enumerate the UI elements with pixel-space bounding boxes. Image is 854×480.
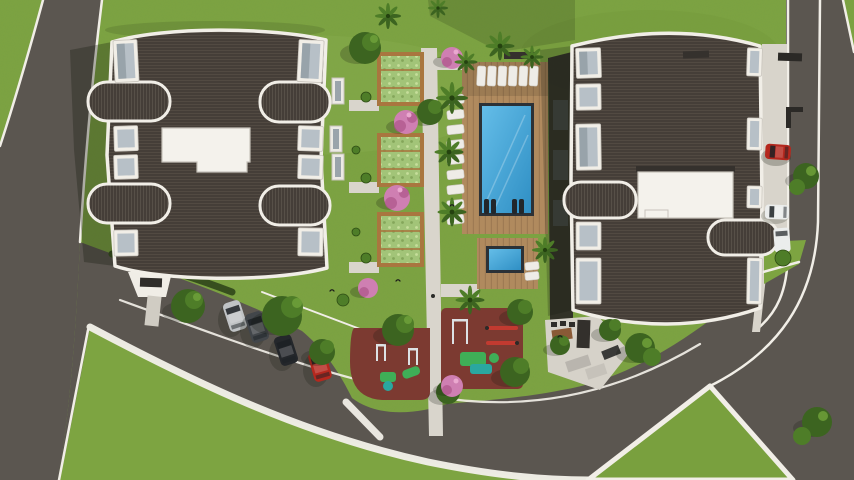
swing-frame-post	[384, 345, 386, 361]
skylight	[747, 118, 763, 150]
skylight	[576, 222, 601, 250]
palm-tree	[486, 32, 515, 61]
slide-unit	[380, 372, 396, 382]
sun-lounger	[447, 124, 465, 135]
palm-tree	[435, 138, 464, 167]
entrance-canopy	[778, 53, 802, 62]
apartment-building-east	[564, 33, 778, 324]
sun-lounger	[529, 66, 539, 86]
roof-bay-east	[708, 220, 778, 255]
roof-vent	[683, 51, 709, 59]
apartment-building-west	[88, 30, 344, 278]
shrub-ball	[352, 146, 360, 154]
skylight	[575, 48, 601, 79]
shrub-ball	[361, 92, 371, 102]
driveway-car-white	[765, 204, 789, 219]
garden-path-2	[349, 182, 379, 193]
skylight	[576, 124, 602, 170]
skylight	[747, 258, 763, 304]
sun-lounger	[508, 66, 518, 86]
palm-tree	[375, 3, 401, 29]
skylight	[114, 126, 139, 152]
shrub-ball	[361, 253, 371, 263]
driveway-car-red	[765, 143, 792, 160]
sun-lounger	[487, 66, 497, 86]
pool-ladder	[491, 199, 496, 214]
palm-tree	[454, 50, 477, 73]
palm-tree	[456, 286, 485, 315]
roof-bay-east-2	[260, 186, 330, 225]
gym-bench-red	[486, 341, 518, 345]
outdoor-chair	[551, 322, 557, 327]
terrace-frame-dark	[636, 166, 735, 172]
skylight	[297, 39, 324, 82]
shrub-ball	[352, 228, 360, 236]
swing-frame-post	[408, 349, 410, 365]
skylight	[298, 155, 324, 180]
aerial-render: Aerial top-down 3D architectural renderi…	[0, 0, 854, 480]
gym-bench-end	[515, 341, 519, 345]
gym-frame-post	[452, 320, 454, 344]
palm-tree	[438, 198, 467, 227]
skylight	[298, 126, 324, 152]
sun-lounger	[497, 66, 507, 86]
play-structure	[460, 352, 486, 366]
west-entrance-door	[140, 278, 162, 288]
kids-pool-water	[489, 249, 521, 270]
pool-ladder	[484, 199, 489, 214]
pool-ladder	[519, 199, 524, 214]
garden-bed-3	[379, 214, 422, 265]
roof-terrace-white	[638, 172, 733, 218]
skylight	[747, 186, 762, 208]
skylight	[114, 230, 138, 256]
west-building-balconies	[330, 78, 344, 180]
gym-bench-end	[485, 326, 489, 330]
skylight	[298, 228, 323, 256]
outdoor-chair	[560, 321, 566, 326]
garden-path-3	[349, 262, 379, 273]
sun-lounger	[525, 271, 540, 280]
skylight	[576, 258, 601, 304]
pool-ladder	[512, 199, 517, 214]
shrub	[337, 294, 349, 306]
site-plan-render: Aerial top-down 3D architectural renderi…	[0, 0, 854, 480]
palm-tree	[436, 82, 468, 114]
skylight	[114, 155, 139, 180]
roof-bay-west-1	[88, 82, 170, 121]
lamp-post	[431, 294, 435, 298]
balcony-glass	[335, 157, 341, 177]
sun-lounger	[447, 169, 465, 180]
swing-frame-post	[376, 345, 378, 361]
balcony-glass	[335, 81, 341, 101]
sun-lounger	[525, 261, 540, 270]
palm-tree	[520, 45, 543, 68]
balcony-glass	[333, 129, 339, 149]
sun-lounger	[476, 66, 486, 86]
van-windshield	[775, 231, 787, 237]
sun-lounger	[447, 109, 465, 120]
play-tube	[383, 381, 393, 391]
outdoor-chair	[569, 322, 575, 327]
roof-bay-east-1	[260, 82, 330, 122]
main-pool-water	[482, 106, 531, 213]
east-entrance-door	[577, 320, 591, 348]
garden-bed-2	[379, 135, 422, 185]
shrub	[775, 250, 791, 266]
sun-lounger	[518, 66, 528, 86]
roof-bay-west-2	[88, 184, 170, 223]
palm-tree	[532, 237, 558, 263]
gate-post	[786, 107, 791, 128]
garden-bed-1	[379, 54, 422, 104]
gym-bench-red	[486, 326, 518, 330]
gym-frame-bar	[452, 319, 468, 322]
skylight	[113, 39, 139, 82]
sun-lounger	[447, 184, 465, 195]
gym-frame-post	[466, 320, 468, 344]
garden-beds	[379, 54, 422, 265]
play-structure-teal	[470, 364, 492, 374]
swing-frame-post	[416, 349, 418, 365]
skylight	[576, 84, 601, 110]
play-dome	[489, 353, 499, 363]
skylight	[747, 48, 763, 77]
roof-bay-west	[564, 182, 636, 218]
shrub-ball	[361, 173, 371, 183]
